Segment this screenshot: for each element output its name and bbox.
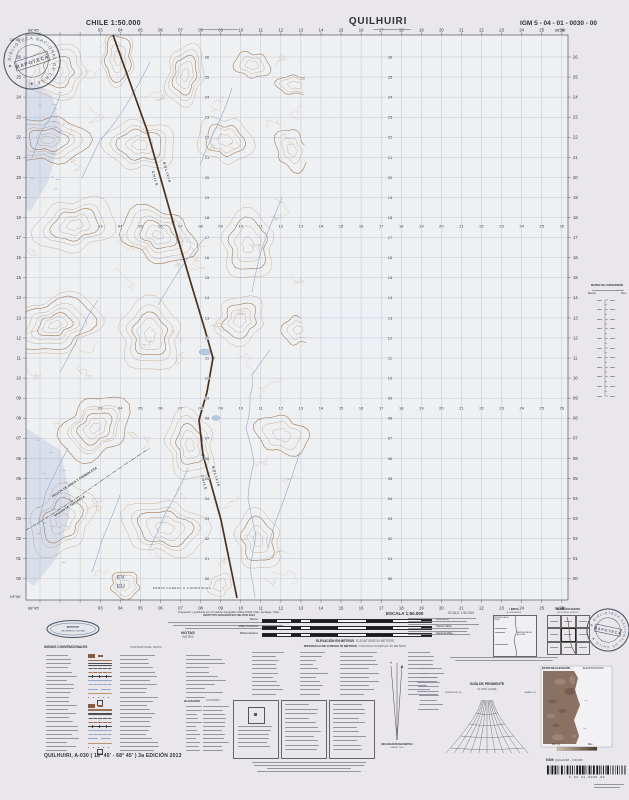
text-line: [88, 672, 112, 673]
text-line: [285, 749, 317, 750]
text-line: [120, 742, 158, 743]
text-line: [285, 736, 314, 737]
text-line: [285, 713, 317, 714]
text-line: [46, 726, 78, 727]
text-line: [340, 685, 369, 686]
text-line: [333, 731, 359, 732]
elevation-note-1: ELEVACIÓN EN METROS ELEVATIONS IN METERS: [240, 639, 470, 643]
text-line: [300, 694, 320, 695]
igm-abbr: IGM: [546, 757, 554, 762]
text-line: [186, 655, 210, 656]
text-line: [203, 726, 225, 727]
text-line: [252, 762, 366, 763]
text-line: [88, 697, 89, 698]
text-line: [610, 357, 615, 358]
matrix-title: MATRIZ DE CONVERSIÓN: [586, 284, 628, 287]
text-line: [238, 730, 271, 731]
legend-symbol-square: [97, 700, 103, 706]
text-line: [46, 697, 69, 698]
text-line: [285, 745, 319, 746]
scalebar-segment: [277, 634, 291, 637]
text-line: [252, 694, 276, 695]
text-line: [333, 736, 366, 737]
text-line: [418, 686, 439, 687]
text-line: [333, 745, 361, 746]
text-line: [300, 656, 322, 657]
scalebar-segment: [301, 627, 311, 630]
text-line: [285, 727, 318, 728]
text-line: [285, 709, 318, 710]
text-line: [88, 665, 112, 666]
pendiente-heading: GUÍA DE PENDIENTE: [447, 682, 527, 686]
text-line: [120, 738, 152, 739]
text-line: [101, 689, 111, 690]
text-line: [597, 328, 602, 329]
text-line: [597, 396, 602, 397]
text-line: [46, 667, 68, 668]
scalebar-segment: [277, 620, 291, 623]
text-line: [88, 747, 89, 748]
text-line: [610, 338, 615, 339]
text-line: [408, 631, 467, 632]
adjoining-boundary-line: [567, 617, 575, 653]
text-line: [46, 655, 68, 656]
text-line: [98, 747, 99, 748]
text-line: [300, 681, 320, 682]
text-line: [46, 692, 71, 693]
text-line: [203, 746, 222, 747]
text-line: [597, 338, 602, 339]
text-line: [88, 660, 112, 661]
scalebar-segment: [277, 627, 291, 630]
text-line: [120, 692, 146, 693]
text-line: [408, 628, 469, 629]
text-line: [88, 693, 112, 694]
text-line: [252, 681, 277, 682]
text-line: [610, 396, 615, 397]
scalebar-segment: [310, 627, 338, 630]
text-line: [120, 709, 150, 710]
text-line: [252, 689, 283, 690]
text-line: [200, 29, 238, 30]
text-line: [103, 697, 104, 698]
text-line: [46, 746, 76, 747]
text-line: [597, 319, 602, 320]
interval-es: INTERVALO DE CURVAS 50 METROS: [304, 644, 357, 648]
text-line: [333, 740, 357, 741]
elevation-note-2: INTERVALO DE CURVAS 50 METROS CONTOUR IN…: [240, 644, 470, 648]
text-line: [46, 721, 73, 722]
text-line: [186, 659, 222, 660]
text-line: [88, 684, 112, 685]
text-line: [594, 787, 620, 788]
text-line: [340, 660, 376, 661]
text-line: [420, 700, 437, 701]
text-line: [120, 726, 151, 727]
text-line: [120, 721, 150, 722]
text-line: [103, 747, 104, 748]
republica-chile-label: REPÚBLICA DE CHILE: [494, 617, 512, 621]
matrix-columns: MetrosPies: [588, 292, 626, 295]
text-line: [46, 701, 69, 702]
text-line: [254, 765, 364, 766]
text-line: [238, 742, 267, 743]
text-line: [238, 734, 269, 735]
text-line: [610, 300, 615, 301]
text-line: [186, 746, 199, 747]
scalebar-segment: [301, 620, 311, 623]
text-line: [610, 367, 615, 368]
text-line: [252, 668, 277, 669]
text-line: [238, 726, 272, 727]
map-sheet-page: 0303030304040404050505050606060607070707…: [0, 0, 629, 800]
text-line: [88, 713, 112, 714]
text-line: [592, 290, 624, 291]
hojas-heading: HOJAS ADYACENTES: [543, 609, 593, 611]
text-line: [340, 694, 364, 695]
text-line: [88, 743, 112, 744]
text-line: [333, 749, 362, 750]
text-line: [203, 750, 223, 751]
text-line: [610, 348, 615, 349]
min-label: Mín (m): [552, 743, 560, 746]
text-line: [333, 727, 357, 728]
text-line: [252, 673, 278, 674]
limites-heading: LÍMITES: [489, 609, 539, 611]
text-line: [257, 771, 361, 772]
text-line: [340, 656, 373, 657]
text-line: [120, 676, 157, 677]
text-line: [419, 677, 437, 678]
igm-product: QUILHUIRI - 1:50.000: [555, 758, 583, 762]
text-line: [203, 722, 225, 723]
text-line: [46, 717, 69, 718]
text-line: [597, 367, 602, 368]
scalebar-graphic: [262, 626, 432, 631]
text-line: [408, 634, 470, 635]
text-line: [101, 738, 111, 739]
elev-en: ELEVATIONS IN METERS: [356, 639, 394, 643]
text-line: [46, 688, 74, 689]
text-line: [267, 768, 351, 769]
text-line: [186, 697, 205, 698]
text-line: [417, 682, 440, 683]
text-line: [333, 704, 362, 705]
text-line: [408, 652, 430, 653]
text-line: [186, 688, 205, 689]
text-line: [285, 731, 321, 732]
text-line: [120, 667, 153, 668]
text-line: [203, 714, 225, 715]
text-line: [203, 718, 226, 719]
text-line: [597, 357, 602, 358]
scalebar-segment: [291, 634, 301, 637]
scalebar: [262, 619, 432, 624]
text-line: [186, 718, 198, 719]
matrix-col-metros: Metros: [588, 292, 596, 295]
text-line: [610, 328, 615, 329]
text-line: [300, 660, 316, 661]
text-line: [92, 725, 93, 728]
text-line: [108, 747, 109, 748]
text-line: [340, 689, 374, 690]
scalebar-segment: [263, 634, 277, 637]
text-line: [106, 675, 107, 678]
text-line: [419, 704, 443, 705]
text-line: [46, 676, 77, 677]
text-line: [300, 689, 320, 690]
text-line: [185, 628, 271, 629]
text-line: [252, 652, 284, 653]
text-line: [340, 652, 377, 653]
scalebar-segment: [366, 627, 394, 630]
escala-label: ESCALA 1:50.000: [386, 611, 423, 616]
text-line: [98, 697, 99, 698]
text-line: [120, 734, 146, 735]
text-line: [120, 713, 155, 714]
text-line: [46, 659, 71, 660]
republica-bolivia-label: REPÚBLICA DE BOLIVIA: [517, 632, 535, 636]
text-line: [300, 664, 313, 665]
text-line: [594, 784, 624, 785]
scalebar-left-label: Millas Náuticas: [214, 632, 258, 635]
glossary-heading: GLOSSARY: [206, 699, 236, 702]
text-line: [203, 710, 223, 711]
text-line: [252, 677, 273, 678]
text-line: [610, 309, 615, 310]
text-line: [93, 747, 94, 748]
text-line: [186, 738, 196, 739]
text-line: [597, 386, 602, 387]
text-line: [610, 376, 615, 377]
interval-en: CONTOUR INTERVAL 50 METERS: [359, 644, 407, 648]
text-line: [418, 709, 439, 710]
text-line: [421, 673, 444, 674]
text-line: [340, 681, 379, 682]
text-line: [46, 680, 67, 681]
text-line: [203, 706, 229, 707]
scalebar: [262, 633, 432, 638]
text-line: [340, 668, 369, 669]
text-line: [186, 692, 223, 693]
scalebar-left-label: Metros: [214, 618, 258, 621]
text-line: [88, 722, 112, 723]
legend-symbol-buildings: [88, 654, 95, 658]
text-line: [333, 718, 359, 719]
text-line: [203, 738, 224, 739]
text-line: [186, 726, 196, 727]
text-line: [120, 697, 158, 698]
text-line: [120, 684, 157, 685]
text-line: [186, 667, 209, 668]
sample-point: [254, 713, 257, 716]
text-line: [408, 618, 476, 619]
scalebar-segment: [263, 620, 277, 623]
text-line: [88, 714, 112, 715]
datos-elev-label: DATOS DE ELEVACIÓN: [542, 667, 570, 670]
text-line: [252, 656, 276, 657]
text-line: [46, 734, 72, 735]
signos-heading: SIGNOS CONVENCIONALES: [44, 645, 87, 649]
text-line: [186, 663, 225, 664]
text-line: [46, 742, 67, 743]
text-line: [186, 684, 215, 685]
text-line: [495, 644, 508, 645]
text-line: [285, 722, 316, 723]
text-line: [88, 689, 98, 690]
legend-symbol-buildings: [88, 704, 95, 708]
text-line: [252, 664, 276, 665]
pendiente-pct-label: PENDIENTE (%): [445, 692, 479, 694]
text-line: [333, 722, 365, 723]
text-line: [610, 319, 615, 320]
text-line: [597, 309, 602, 310]
scalebar-segment: [291, 620, 301, 623]
max-label: Máx: [588, 743, 593, 746]
text-line: [120, 717, 152, 718]
igm-product-line: IGM QUILHUIRI - 1:50.000: [546, 757, 626, 762]
text-line: [88, 709, 112, 710]
text-line: [252, 685, 280, 686]
text-line: [186, 676, 218, 677]
text-line: [495, 632, 505, 633]
scalebar-graphic: [262, 619, 432, 624]
text-line: [120, 701, 153, 702]
text-line: [108, 697, 109, 698]
text-line: [120, 659, 148, 660]
elev-es: ELEVACIÓN EN METROS: [316, 639, 354, 643]
text-line: [300, 652, 325, 653]
text-line: [186, 680, 226, 681]
text-line: [300, 673, 328, 674]
scalebar-segment: [310, 634, 338, 637]
text-line: [88, 663, 112, 664]
text-line: [300, 685, 323, 686]
text-line: [597, 300, 602, 301]
declinacion-date: ENERO 2013: [377, 747, 417, 749]
text-line: [238, 746, 270, 747]
text-line: [88, 668, 112, 669]
text-line: [46, 738, 79, 739]
text-line: [300, 668, 318, 669]
text-line: [120, 663, 149, 664]
text-line: [186, 710, 202, 711]
notes-heading: NOTES: [150, 635, 226, 639]
scalebar-segment: [291, 627, 301, 630]
text-line: [88, 738, 98, 739]
text-line: [340, 677, 369, 678]
text-line: [120, 672, 155, 673]
text-line: [186, 722, 202, 723]
margin-content: MATRIZ DE CONVERSIÓNMetrosPiesPreparado …: [0, 0, 629, 800]
text-line: [419, 695, 439, 696]
text-line: [597, 348, 602, 349]
text-line: [88, 718, 112, 719]
scalebar-segment: [338, 620, 366, 623]
text-line: [455, 660, 553, 661]
text-line: [408, 664, 433, 665]
text-line: [285, 718, 309, 719]
grade-pct-label: GRADE (%): [506, 692, 536, 694]
scalebar-segment: [263, 627, 277, 630]
text-line: [186, 750, 200, 751]
text-line: [203, 742, 229, 743]
text-line: [120, 655, 155, 656]
scalebar-graphic: [262, 633, 432, 638]
text-line: [333, 713, 365, 714]
text-line: [106, 725, 107, 728]
text-line: [120, 705, 147, 706]
scalebar: [262, 626, 432, 631]
text-line: [88, 680, 112, 681]
text-line: [285, 704, 309, 705]
text-line: [46, 709, 68, 710]
barcode-digits: 5 04 01 0030 00: [547, 776, 627, 779]
text-line: [408, 660, 433, 661]
elev-data-label: ELEVATION DATA: [583, 667, 604, 670]
text-line: [120, 746, 159, 747]
scale-en-label: SCALE 1:50.000: [448, 611, 474, 615]
text-line: [186, 672, 209, 673]
text-line: [99, 725, 100, 728]
text-line: [203, 734, 225, 735]
text-line: [99, 675, 100, 678]
text-line: [186, 734, 200, 735]
matrix-col-pies: Pies: [621, 292, 626, 295]
text-line: [46, 672, 72, 673]
text-line: [408, 621, 467, 622]
text-line: [597, 376, 602, 377]
text-line: [46, 750, 67, 751]
text-line: [88, 730, 112, 731]
scalebar-segment: [366, 620, 394, 623]
text-line: [120, 730, 149, 731]
text-line: [93, 697, 94, 698]
text-line: [92, 675, 93, 678]
text-line: [238, 738, 269, 739]
scalebar-segment: [301, 634, 311, 637]
slope-heading: SLOPE GUIDE: [447, 687, 527, 691]
text-line: [46, 663, 71, 664]
text-line: [46, 684, 74, 685]
text-line: [120, 688, 147, 689]
edition-line: QUILHUIRI, A-030 ( 18° 45' - 68° 45' ) 3…: [44, 753, 182, 759]
boundaries-heading: BOUNDARIES: [489, 612, 539, 614]
text-line: [46, 730, 78, 731]
scalebar-segment: [338, 627, 366, 630]
adjoining-heading: ADJOINING SHEETS: [543, 612, 593, 614]
text-line: [186, 714, 197, 715]
scalebar-segment: [310, 620, 338, 623]
signs-en-heading: CONVENTIONAL SIGNS: [130, 645, 161, 649]
text-line: [495, 628, 507, 629]
text-line: [186, 742, 200, 743]
scalebar-left-label: Millas Terrestres: [214, 625, 258, 628]
text-line: [408, 656, 434, 657]
declinacion-label: DECLINACIÓN MAGNÉTICA: [377, 743, 417, 746]
text-line: [340, 673, 379, 674]
text-line: [252, 660, 279, 661]
text-line: [300, 677, 316, 678]
text-line: [186, 730, 197, 731]
text-line: [186, 706, 202, 707]
text-line: [285, 740, 318, 741]
text-line: [46, 713, 76, 714]
text-line: [420, 668, 442, 669]
text-line: [340, 664, 378, 665]
adjoining-diagonal: [547, 615, 590, 655]
scalebar-segment: [338, 634, 366, 637]
